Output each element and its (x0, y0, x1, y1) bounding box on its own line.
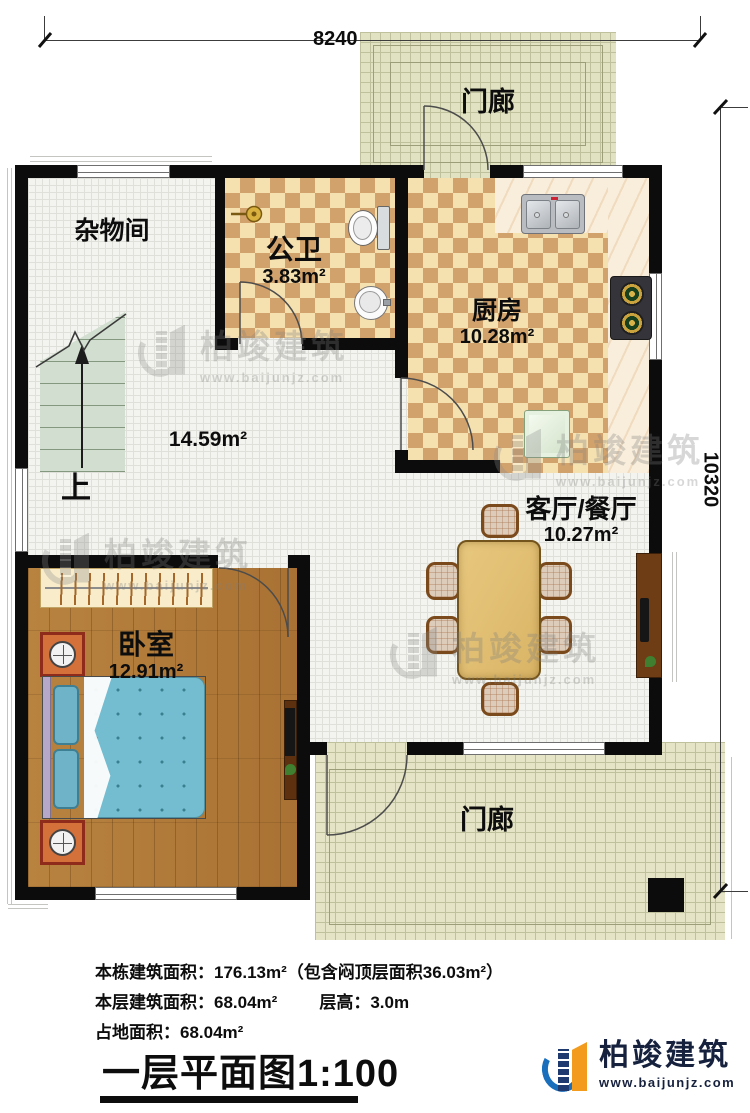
summary-floor-area: 本层建筑面积：68.04m² (95, 988, 277, 1013)
nightstand (40, 820, 85, 865)
label-porch-top: 门廊 (461, 88, 515, 118)
window (523, 165, 623, 178)
stair-direction-arrow-stem (81, 362, 83, 468)
toilet (348, 204, 390, 252)
label-bathroom: 公卫 3.83m² (262, 235, 325, 288)
sill-line (731, 757, 732, 939)
company-website: www.baijunjz.com (599, 1075, 735, 1090)
dimension-extension (722, 891, 748, 892)
window (77, 165, 170, 178)
dining-chair (481, 682, 519, 716)
dimension-extension (700, 16, 701, 40)
tv-screen (640, 598, 649, 642)
label-kitchen: 厨房 10.28m² (460, 298, 535, 348)
wall (15, 552, 28, 900)
dimension-extension (722, 107, 748, 108)
dining-table (457, 540, 541, 680)
summary-line-3: 占地面积：68.04m² (95, 1018, 243, 1043)
dining-chair (426, 562, 460, 600)
company-name: 柏竣建筑 (599, 1040, 735, 1072)
wall (310, 742, 327, 755)
wall (407, 742, 463, 755)
dining-chair (426, 616, 460, 654)
label-hall-area: 14.59m² (169, 428, 247, 451)
window (95, 887, 237, 900)
sill-line (30, 156, 212, 157)
wall (302, 338, 395, 350)
wall (649, 165, 662, 273)
dining-chair (538, 562, 572, 600)
sill-line (11, 168, 12, 904)
sill-line (30, 161, 212, 162)
wall (395, 178, 408, 378)
kitchen-sink (521, 194, 585, 234)
dining-chair (538, 616, 572, 654)
wash-basin (354, 286, 388, 320)
porch-column (648, 878, 684, 912)
floor-plan-page: 8240 10320 (0, 0, 750, 1113)
plant (285, 764, 296, 775)
wall (237, 887, 310, 900)
wall (215, 338, 238, 350)
sill-line (676, 552, 677, 682)
page-title: 一层平面图1:100 (102, 1042, 399, 1097)
dining-chair (481, 504, 519, 538)
title-underline (100, 1096, 358, 1103)
label-living-dining: 客厅/餐厅 10.27m² (525, 495, 636, 546)
wall (490, 165, 523, 178)
wall (395, 460, 500, 473)
wall (605, 742, 662, 755)
fridge (524, 410, 570, 458)
label-storage: 杂物间 (74, 218, 149, 246)
window (15, 468, 28, 552)
dimension-height: 10320 (699, 438, 722, 522)
label-stair-up: 上 (61, 472, 91, 505)
sill-line (8, 908, 48, 909)
wall (15, 555, 218, 568)
label-porch-bottom: 门廊 (460, 806, 514, 836)
company-logo-icon (548, 1040, 592, 1096)
dimension-width: 8240 (313, 28, 358, 51)
stair-direction-arrow (75, 344, 89, 364)
summary-line-1: 本栋建筑面积：176.13m²（包含闷顶层面积36.03m²） (95, 958, 503, 983)
dimension-extension (44, 16, 45, 40)
wardrobe (40, 568, 213, 608)
bedroom-tv-screen (285, 708, 295, 756)
sill-line (672, 552, 673, 682)
summary-line-2: 本层建筑面积：68.04m² 层高：3.0m (95, 988, 409, 1013)
wall (15, 165, 28, 468)
sill-line (8, 904, 48, 905)
window (463, 742, 605, 755)
wall (297, 555, 310, 900)
sill-line (7, 168, 8, 904)
bed (43, 677, 205, 818)
plant (645, 656, 656, 667)
wall (215, 178, 225, 348)
wall (170, 165, 424, 178)
wall (15, 887, 95, 900)
nightstand (40, 632, 85, 677)
dimension-line-top (45, 40, 700, 41)
summary-floor-height: 层高：3.0m (319, 988, 409, 1013)
stove (610, 276, 652, 340)
label-bedroom: 卧室 12.91m² (109, 630, 184, 683)
company-logo: 柏竣建筑 www.baijunjz.com (548, 1040, 735, 1096)
